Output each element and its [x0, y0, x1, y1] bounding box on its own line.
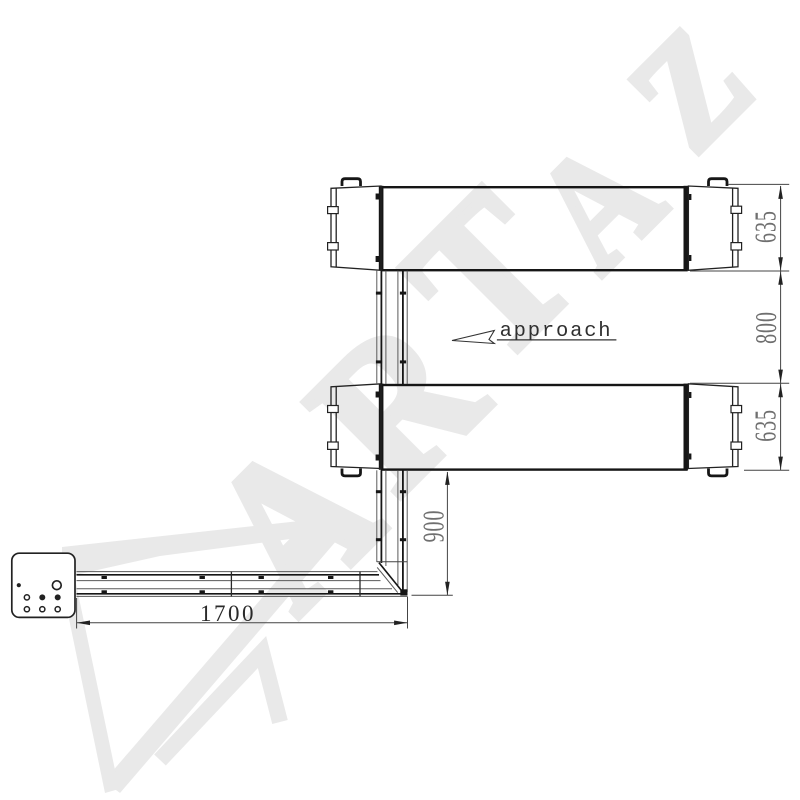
svg-text:1700: 1700	[200, 601, 256, 626]
svg-text:635: 635	[748, 210, 782, 243]
svg-text:635: 635	[748, 409, 782, 442]
svg-text:800: 800	[749, 311, 783, 344]
svg-text:900: 900	[416, 510, 450, 543]
svg-text:approach: approach	[500, 320, 613, 343]
